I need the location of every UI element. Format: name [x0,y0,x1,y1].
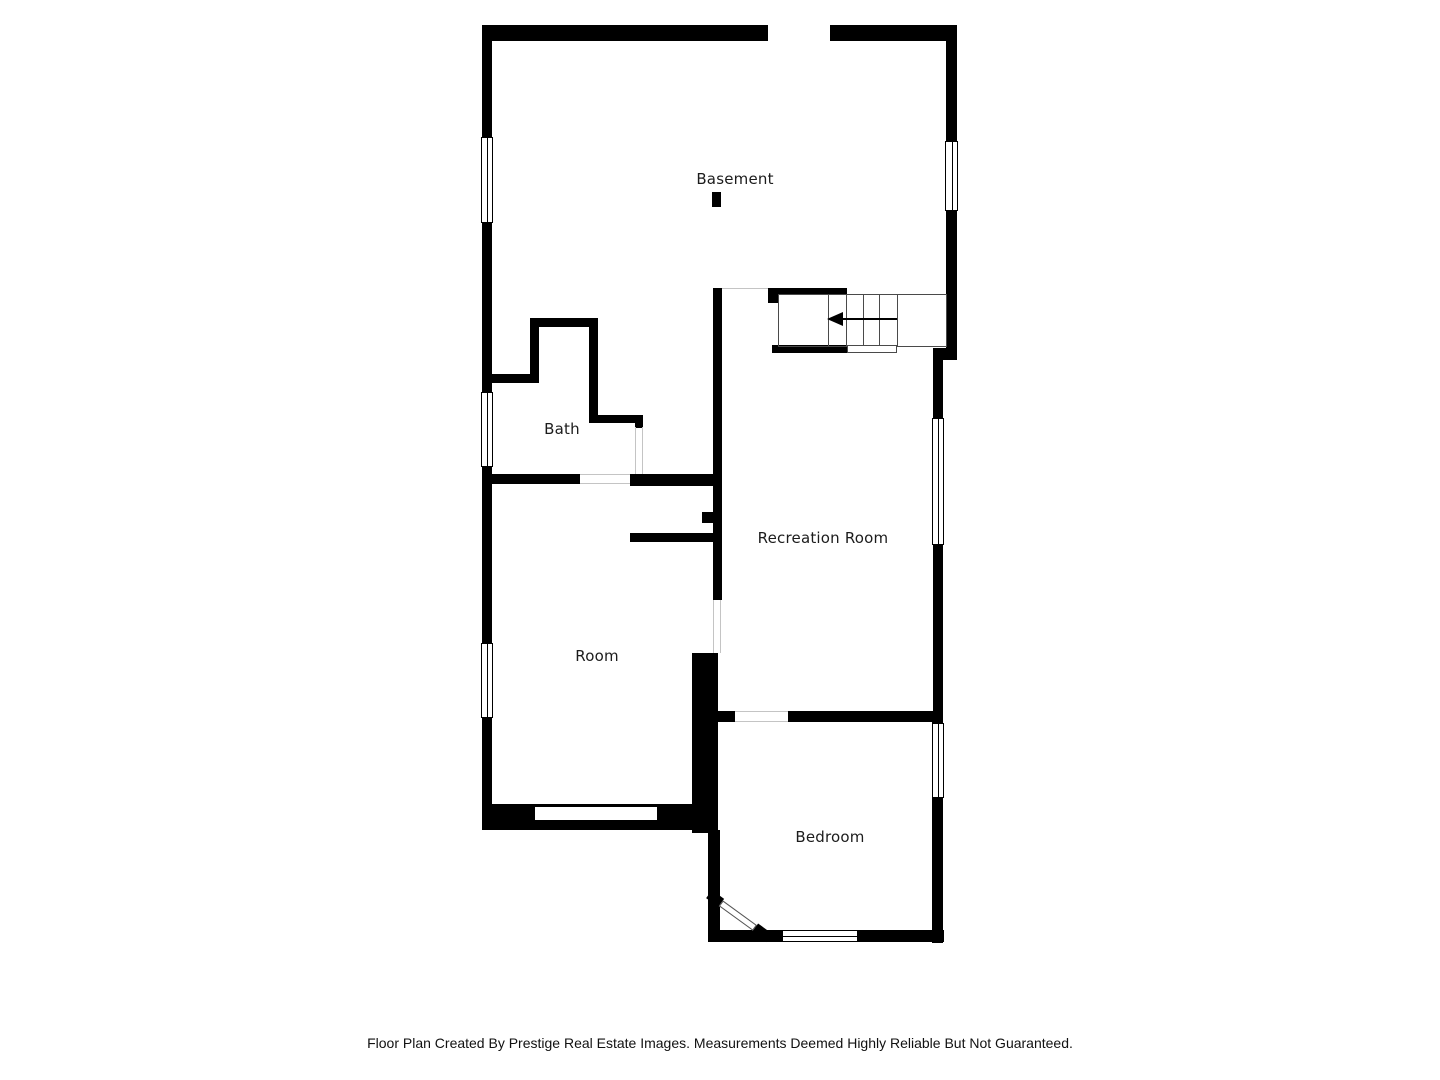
opening-bedroom-top-b [735,721,788,722]
wall-stair-notch [768,295,778,303]
wall-bedroom-top-stub [718,711,735,722]
wall-bath-bottom [492,474,580,484]
room-label-bath: Bath [544,420,580,438]
wall-mid-vertical [713,288,722,600]
door-leaf [719,900,757,930]
stair-tread [897,294,898,347]
wall-bath-top [532,318,597,327]
window-recreation-right [932,418,944,545]
floor-plan: Basement Bath Room Recreation Room Bedro… [0,0,1440,1080]
stairs-direction-arrow-icon [827,312,843,326]
wall-nook-bottom [630,533,722,542]
opening-hall-recreation-a [713,600,714,653]
stair-landing-box [847,345,897,353]
window-room-bottom [534,806,658,821]
stairs-direction-arrow [843,318,897,320]
wall-top-left [482,25,768,41]
stair-tread [879,294,880,347]
room-label-room: Room [575,647,619,665]
window-bedroom-right [932,723,944,798]
window-bath-left [481,392,493,467]
stair-tread [846,294,847,347]
wall-bath-connector [492,374,538,383]
wall-bath-right [589,318,598,423]
room-label-basement: Basement [696,170,773,188]
window-basement-right [945,141,958,211]
window-basement-left [481,137,493,223]
wall-thick-block [692,653,718,833]
window-room-left [481,643,493,718]
wall-bedroom-top-main [788,711,943,722]
opening-basement-hall [722,288,768,289]
wall-bedroom-left [708,830,720,942]
stair-tread [863,294,864,347]
wall-nook-top [630,474,722,486]
window-bedroom-bottom [782,930,858,942]
room-label-recreation: Recreation Room [758,529,889,547]
wall-nook-notch [702,512,713,523]
opening-bedroom-top-a [735,711,788,712]
support-post [712,192,721,207]
disclaimer-text: Floor Plan Created By Prestige Real Esta… [0,1035,1440,1051]
room-label-bedroom: Bedroom [795,828,864,846]
opening-hall-recreation-b [720,600,721,653]
opening-bath-right-b [642,427,643,474]
opening-bath-bottom-b [580,483,630,484]
opening-bath-bottom-a [580,474,630,475]
opening-bath-right-a [635,427,636,474]
wall-top-right [830,25,957,41]
